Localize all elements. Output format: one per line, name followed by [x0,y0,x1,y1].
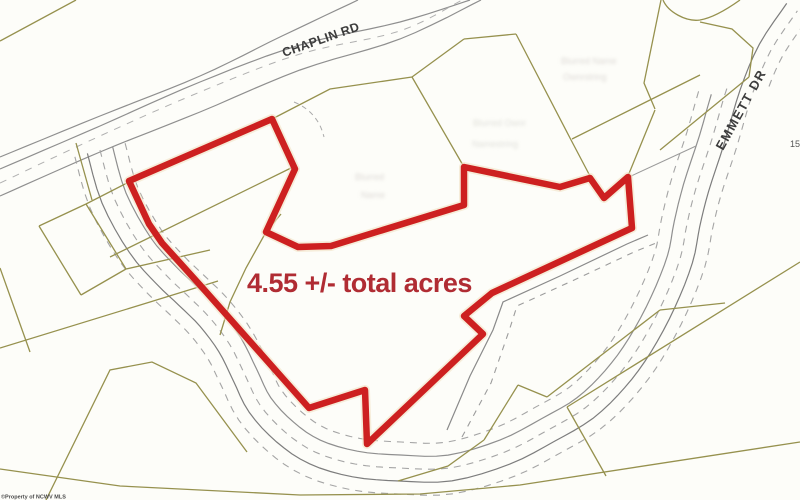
svg-text:Blurred: Blurred [355,172,384,182]
svg-text:Namestring: Namestring [472,139,518,149]
svg-text:4.55 +/- total acres: 4.55 +/- total acres [247,268,472,298]
svg-text:Blurred Name: Blurred Name [561,56,617,66]
svg-text:©Property of NCWV MLS: ©Property of NCWV MLS [1,494,66,500]
svg-text:15: 15 [790,139,800,149]
svg-text:Ownrstring: Ownrstring [563,72,607,82]
svg-text:Blurred Ownr: Blurred Ownr [473,118,526,128]
svg-text:Name: Name [361,190,385,200]
